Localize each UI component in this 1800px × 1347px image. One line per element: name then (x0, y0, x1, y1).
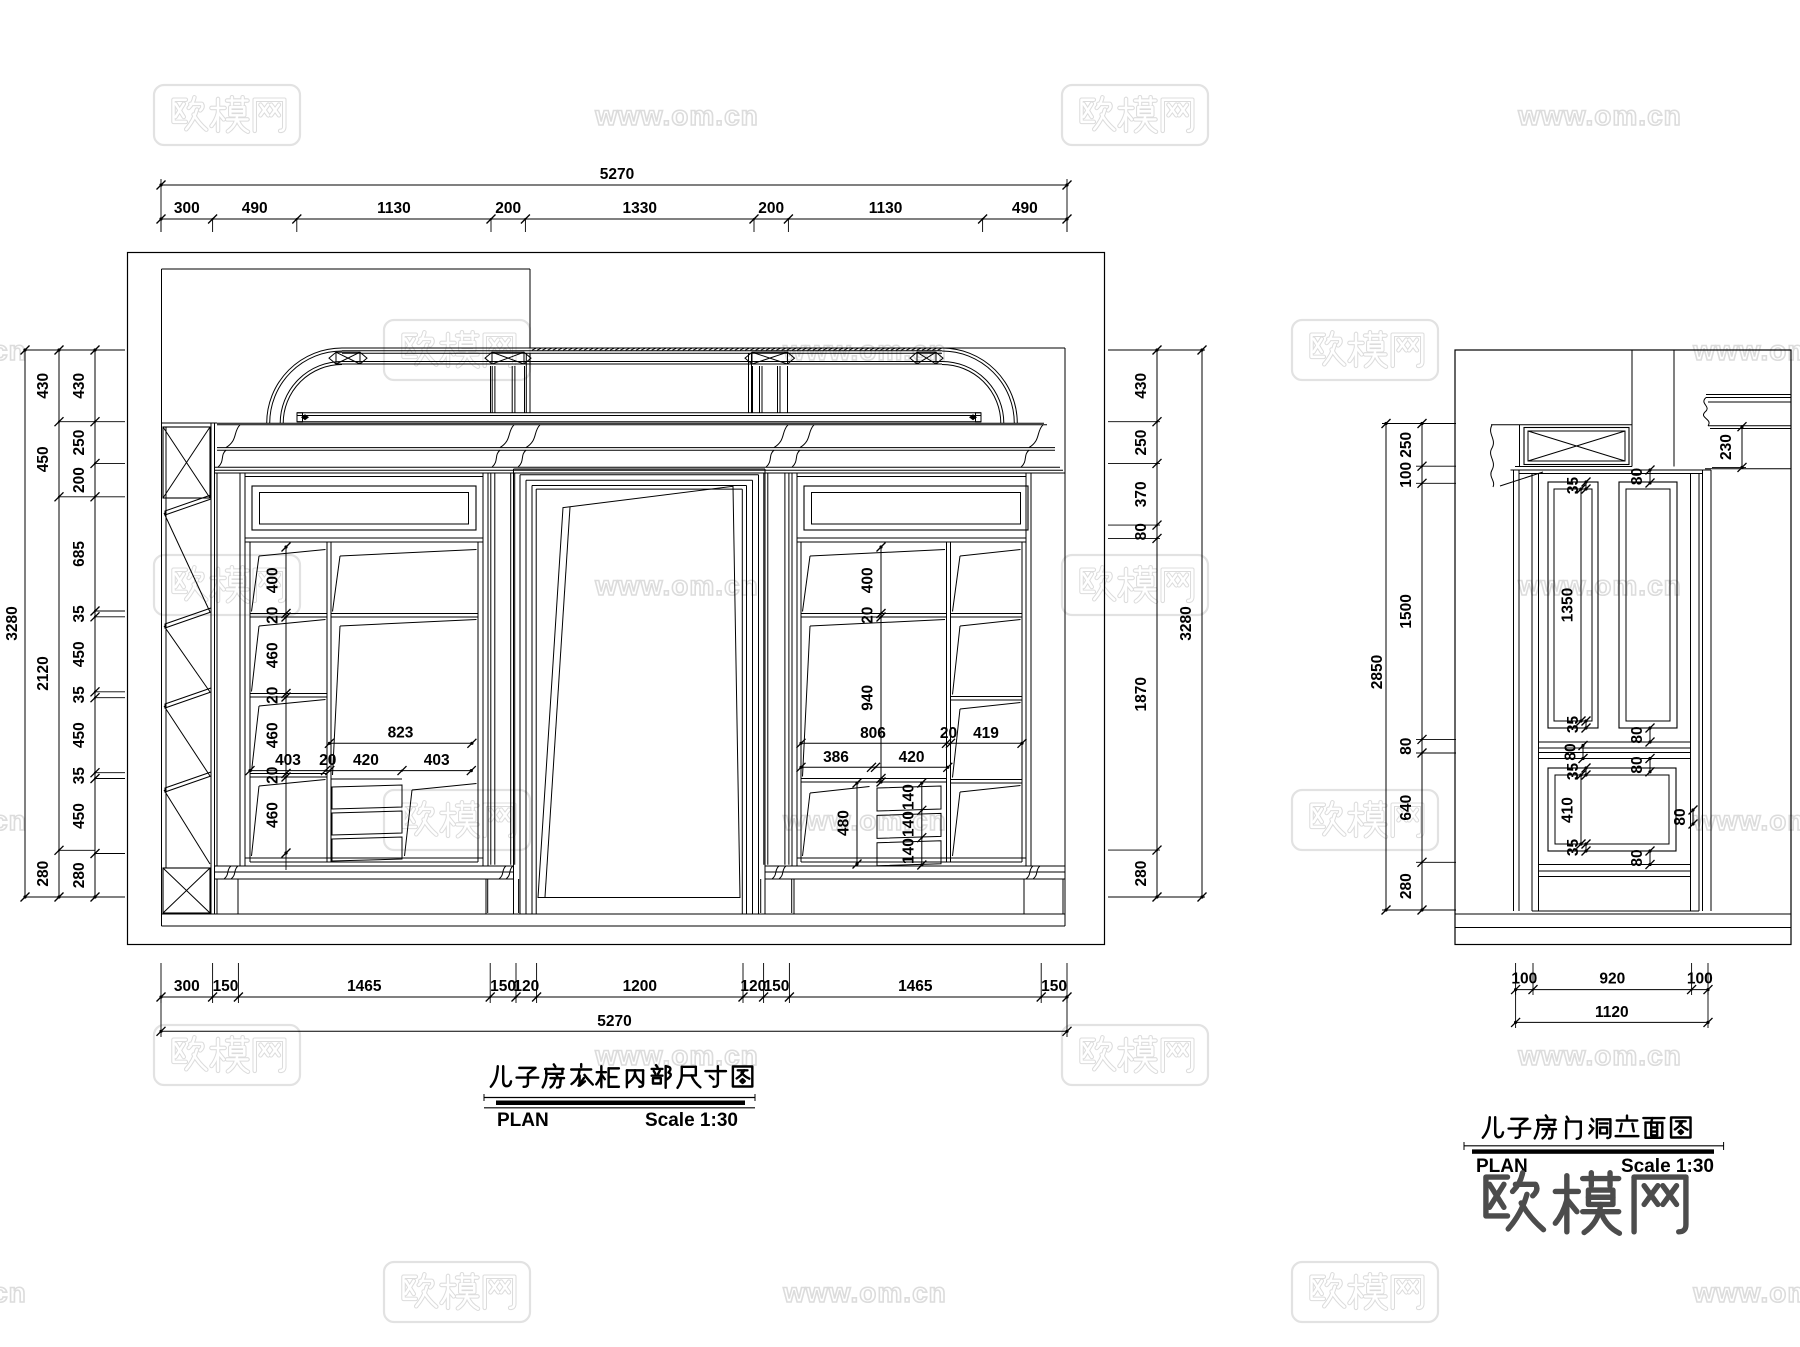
svg-text:80: 80 (1398, 738, 1415, 755)
svg-text:410: 410 (1560, 797, 1577, 823)
svg-text:1350: 1350 (1560, 588, 1577, 622)
svg-text:450: 450 (71, 641, 88, 667)
svg-text:35: 35 (1565, 477, 1582, 495)
svg-text:5270: 5270 (600, 166, 634, 183)
svg-text:823: 823 (388, 725, 414, 742)
svg-text:www.om.cn: www.om.cn (1692, 1277, 1800, 1308)
svg-text:www.om.cn: www.om.cn (1692, 805, 1800, 836)
svg-text:419: 419 (973, 725, 999, 742)
svg-text:806: 806 (860, 725, 886, 742)
svg-text:200: 200 (758, 200, 784, 217)
svg-text:35: 35 (1565, 839, 1582, 857)
svg-text:150: 150 (1041, 978, 1067, 995)
svg-text:450: 450 (71, 803, 88, 829)
svg-text:280: 280 (71, 862, 88, 888)
svg-text:www.om.cn: www.om.cn (1517, 1040, 1682, 1071)
svg-text:150: 150 (213, 978, 239, 995)
svg-text:100: 100 (1687, 970, 1713, 987)
svg-text:1330: 1330 (622, 200, 656, 217)
svg-text:420: 420 (899, 749, 925, 766)
svg-text:140: 140 (901, 811, 918, 837)
svg-text:5270: 5270 (597, 1013, 631, 1030)
svg-text:20: 20 (265, 607, 282, 624)
svg-text:250: 250 (71, 430, 88, 456)
svg-text:400: 400 (860, 567, 877, 593)
svg-text:35: 35 (71, 767, 88, 785)
svg-text:3280: 3280 (1178, 606, 1195, 640)
svg-text:920: 920 (1599, 970, 1625, 987)
svg-text:PLAN: PLAN (497, 1110, 549, 1131)
svg-text:1465: 1465 (347, 978, 382, 995)
svg-text:450: 450 (71, 722, 88, 748)
svg-text:www.om.cn: www.om.cn (0, 1277, 27, 1308)
svg-text:940: 940 (860, 685, 877, 711)
svg-text:Scale 1:30: Scale 1:30 (1621, 1156, 1714, 1177)
svg-text:403: 403 (424, 752, 450, 769)
svg-text:20: 20 (319, 752, 336, 769)
svg-text:450: 450 (35, 446, 52, 472)
svg-text:1500: 1500 (1398, 594, 1415, 628)
svg-text:280: 280 (35, 861, 52, 887)
svg-text:80: 80 (1629, 756, 1646, 773)
svg-text:200: 200 (71, 467, 88, 493)
svg-text:20: 20 (860, 607, 877, 624)
svg-text:490: 490 (1012, 200, 1038, 217)
svg-text:1130: 1130 (869, 200, 903, 217)
svg-text:430: 430 (35, 373, 52, 399)
svg-text:480: 480 (836, 810, 853, 836)
svg-text:386: 386 (823, 749, 849, 766)
svg-text:490: 490 (242, 200, 268, 217)
svg-text:80: 80 (1563, 743, 1580, 760)
svg-text:20: 20 (265, 767, 282, 784)
svg-text:150: 150 (764, 978, 790, 995)
svg-text:120: 120 (740, 978, 766, 995)
svg-text:200: 200 (495, 200, 521, 217)
svg-text:80: 80 (1629, 726, 1646, 743)
svg-text:280: 280 (1133, 861, 1150, 887)
svg-text:2850: 2850 (1369, 655, 1386, 689)
svg-text:150: 150 (490, 978, 516, 995)
svg-text:80: 80 (1672, 808, 1689, 825)
svg-text:420: 420 (353, 752, 379, 769)
svg-text:35: 35 (71, 686, 88, 704)
svg-text:35: 35 (1565, 716, 1582, 734)
svg-text:230: 230 (1718, 434, 1735, 460)
svg-text:140: 140 (901, 784, 918, 810)
svg-text:460: 460 (265, 722, 282, 748)
svg-text:300: 300 (174, 200, 200, 217)
svg-text:1130: 1130 (377, 200, 411, 217)
svg-text:400: 400 (265, 567, 282, 593)
svg-text:2120: 2120 (35, 656, 52, 690)
svg-text:80: 80 (1133, 523, 1150, 540)
svg-text:20: 20 (265, 687, 282, 704)
svg-text:1120: 1120 (1595, 1004, 1629, 1021)
svg-text:460: 460 (265, 642, 282, 668)
svg-text:www.om.cn: www.om.cn (782, 1277, 947, 1308)
svg-text:1870: 1870 (1133, 677, 1150, 711)
svg-text:403: 403 (275, 752, 301, 769)
svg-text:300: 300 (174, 978, 200, 995)
svg-text:140: 140 (901, 838, 918, 864)
svg-text:685: 685 (71, 541, 88, 567)
svg-text:www.om.cn: www.om.cn (594, 100, 759, 131)
svg-text:1200: 1200 (623, 978, 657, 995)
svg-text:1465: 1465 (898, 978, 933, 995)
svg-text:www.om.cn: www.om.cn (1517, 100, 1682, 131)
svg-text:35: 35 (71, 605, 88, 623)
svg-text:430: 430 (71, 373, 88, 399)
svg-text:www.om.cn: www.om.cn (0, 805, 27, 836)
svg-text:250: 250 (1133, 430, 1150, 456)
svg-text:100: 100 (1398, 462, 1415, 488)
svg-text:80: 80 (1629, 849, 1646, 866)
svg-text:280: 280 (1398, 873, 1415, 899)
svg-text:80: 80 (1629, 468, 1646, 485)
svg-text:120: 120 (513, 978, 539, 995)
svg-text:3280: 3280 (4, 606, 21, 640)
svg-text:Scale 1:30: Scale 1:30 (645, 1110, 738, 1131)
svg-text:460: 460 (265, 802, 282, 828)
svg-text:www.om.cn: www.om.cn (0, 335, 27, 366)
svg-text:430: 430 (1133, 373, 1150, 399)
svg-text:www.om.cn: www.om.cn (1517, 570, 1682, 601)
svg-text:640: 640 (1398, 795, 1415, 821)
svg-text:20: 20 (940, 725, 957, 742)
svg-text:250: 250 (1398, 432, 1415, 458)
svg-text:35: 35 (1565, 763, 1582, 781)
svg-text:370: 370 (1133, 481, 1150, 507)
